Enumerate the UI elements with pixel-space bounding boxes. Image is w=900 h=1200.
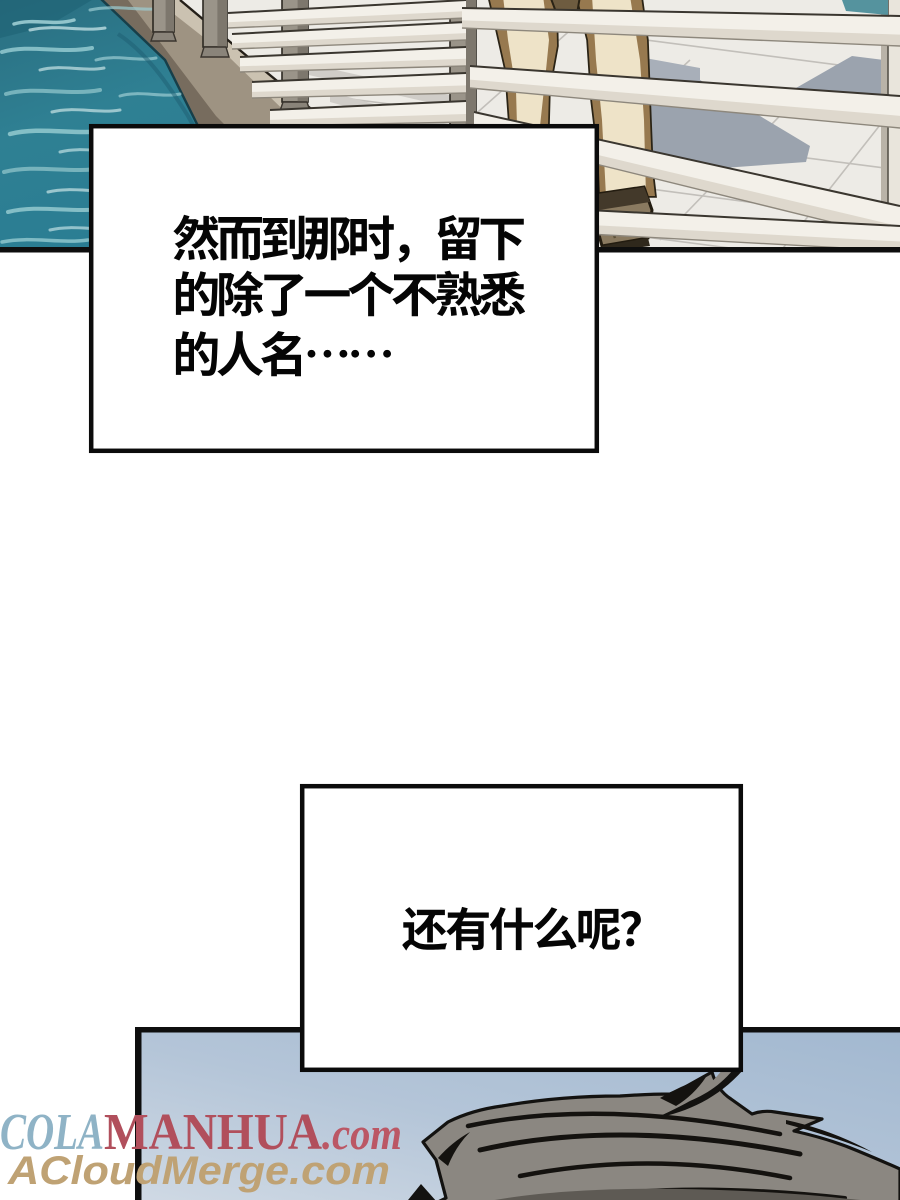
svg-text:ACloudMerge.com: ACloudMerge.com [7, 1149, 390, 1193]
